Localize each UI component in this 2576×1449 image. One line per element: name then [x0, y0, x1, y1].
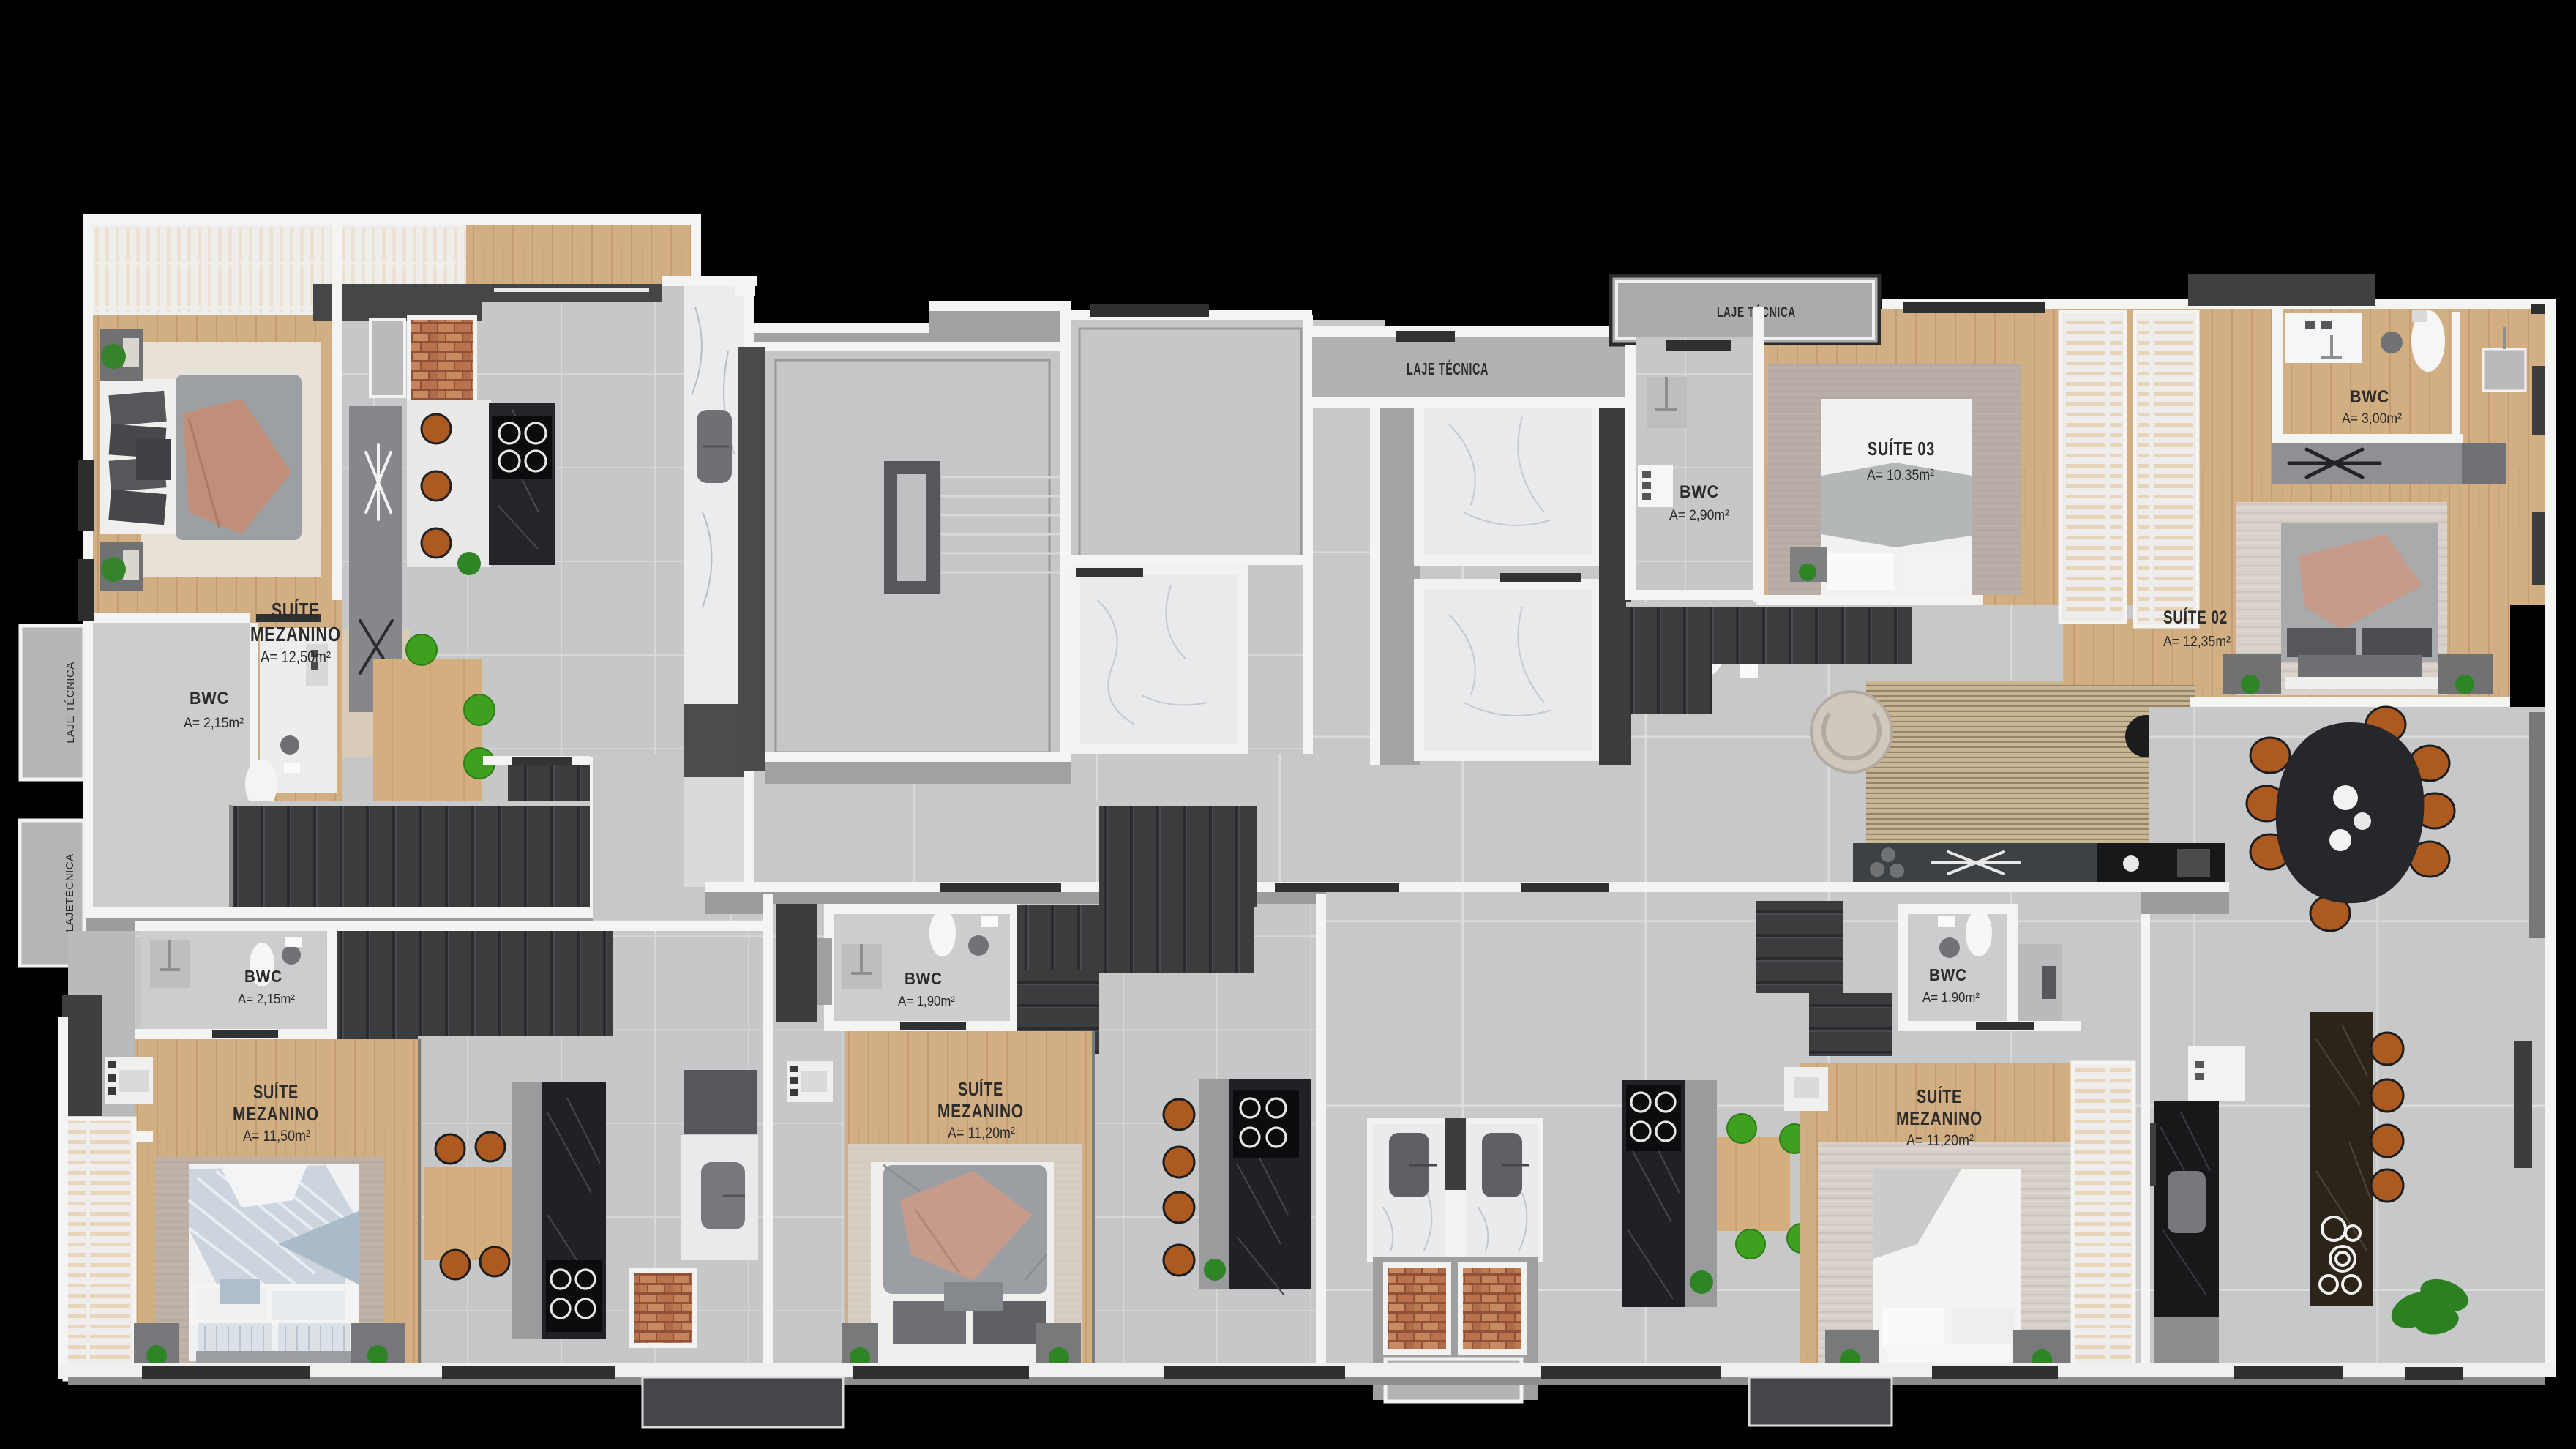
svg-text:MEZANINO: MEZANINO [233, 1103, 319, 1125]
svg-text:A= 2,15m²: A= 2,15m² [238, 992, 295, 1006]
svg-text:BWC: BWC [905, 969, 943, 988]
svg-text:A= 11,20m²: A= 11,20m² [948, 1125, 1015, 1142]
svg-text:BWC: BWC [2350, 387, 2389, 407]
svg-text:BWC: BWC [244, 967, 282, 986]
svg-text:BWC: BWC [1680, 482, 1719, 502]
svg-text:MEZANINO: MEZANINO [250, 623, 341, 645]
svg-text:A= 3,00m²: A= 3,00m² [2342, 411, 2402, 427]
svg-text:A= 12,50m²: A= 12,50m² [261, 648, 331, 666]
svg-text:A= 11,50m²: A= 11,50m² [243, 1128, 310, 1145]
svg-text:MEZANINO: MEZANINO [1896, 1107, 1982, 1129]
svg-text:SUÍTE 03: SUÍTE 03 [1868, 438, 1935, 460]
svg-text:SUÍTE: SUÍTE [1917, 1085, 1962, 1107]
svg-text:SUÍTE: SUÍTE [958, 1078, 1003, 1100]
svg-text:A= 10,35m²: A= 10,35m² [1867, 467, 1934, 484]
svg-text:A= 11,20m²: A= 11,20m² [1906, 1132, 1974, 1149]
svg-text:LAJE TÉCNICA: LAJE TÉCNICA [1407, 359, 1489, 378]
svg-text:SUÍTE 02: SUÍTE 02 [2163, 607, 2228, 628]
svg-text:A= 12,35m²: A= 12,35m² [2163, 634, 2231, 650]
svg-text:BWC: BWC [1929, 965, 1967, 984]
svg-text:A= 2,15m²: A= 2,15m² [184, 716, 244, 731]
svg-text:MEZANINO: MEZANINO [937, 1100, 1024, 1122]
svg-text:A= 2,90m²: A= 2,90m² [1669, 508, 1729, 523]
svg-text:SUÍTE: SUÍTE [272, 599, 320, 621]
svg-text:LAJETÉCNICA: LAJETÉCNICA [64, 853, 76, 932]
svg-text:LAJE TÉCNICA: LAJE TÉCNICA [64, 662, 77, 744]
svg-text:SUÍTE: SUÍTE [253, 1081, 299, 1103]
svg-text:A= 1,90m²: A= 1,90m² [898, 994, 955, 1008]
svg-text:A= 1,90m²: A= 1,90m² [1922, 990, 1980, 1005]
svg-text:BWC: BWC [190, 689, 229, 708]
